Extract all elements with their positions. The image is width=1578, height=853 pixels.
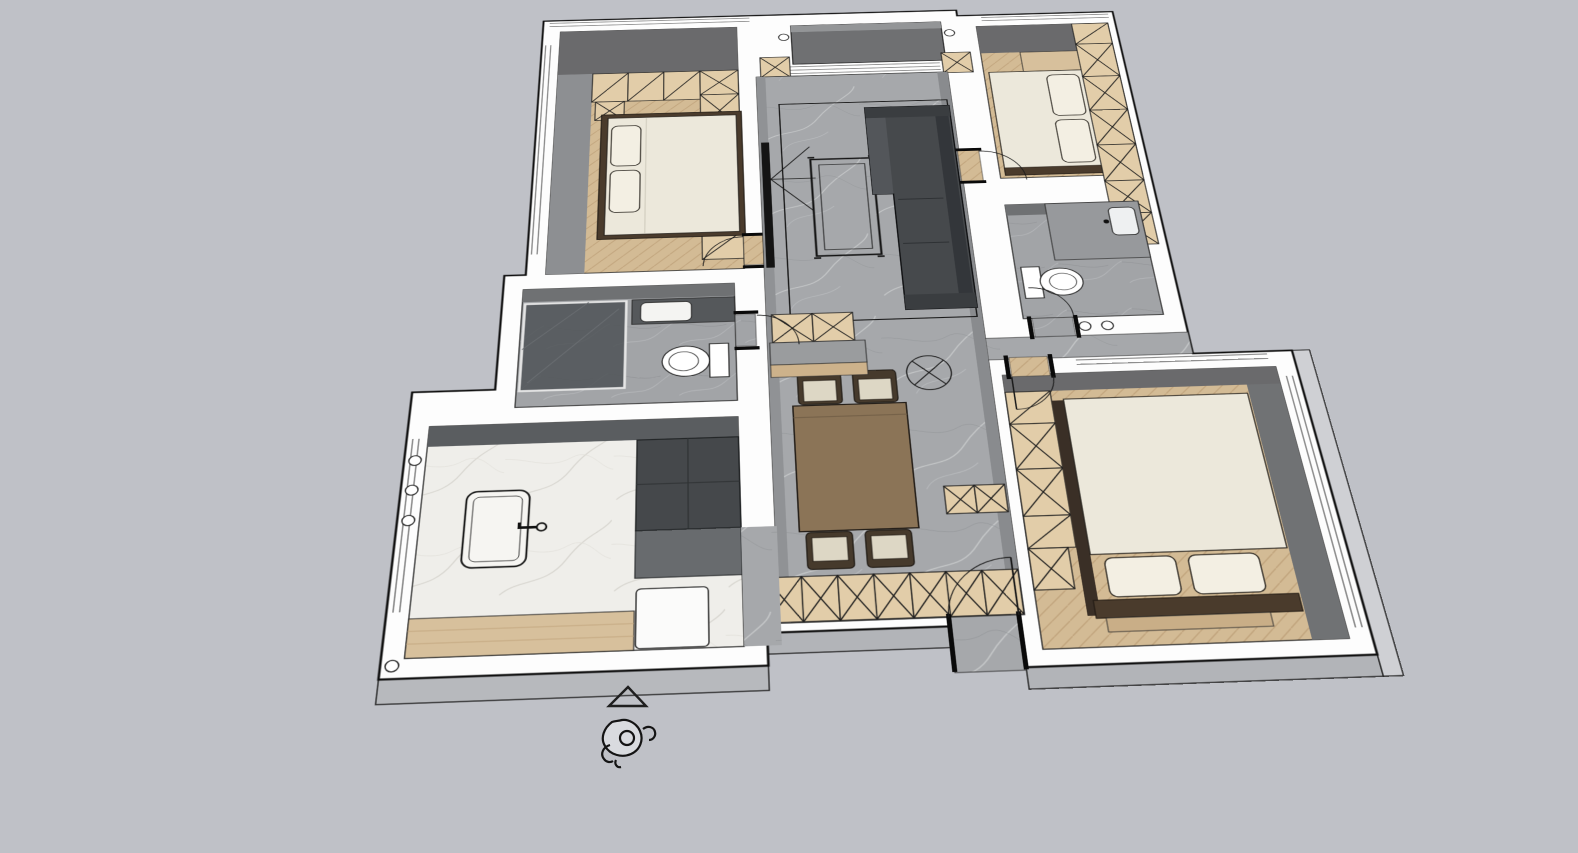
toilet-tank [709, 343, 729, 377]
entry-floor [949, 615, 1027, 673]
bathroom2-door-opening [1032, 317, 1076, 337]
pillow [1187, 553, 1267, 594]
bedroom2-door-opening [957, 150, 983, 181]
person-left-arm [602, 745, 613, 762]
person-body [603, 720, 642, 756]
vanity-sink [1108, 207, 1140, 235]
bed-duvet [1063, 393, 1287, 554]
appliance-box [635, 587, 709, 649]
person-head [620, 731, 634, 745]
wall-pipe [944, 29, 955, 36]
pillow [609, 170, 640, 213]
hall-cabinet-counter [770, 340, 867, 365]
dining-chair [806, 531, 855, 569]
viewport-3d[interactable] [0, 0, 1578, 853]
wood-plank-strip [405, 611, 635, 658]
person-figure-top-view [602, 720, 655, 767]
person-foot [615, 760, 621, 767]
scene-3d-transform [368, 6, 1267, 699]
kitchen-counter-block [635, 527, 742, 578]
entry-near-cabinets [944, 484, 1009, 514]
bedroom1-wall-face [558, 27, 738, 75]
bedroom1-door-opening [743, 235, 764, 265]
room-kitchen [384, 416, 782, 673]
bath1-sink [641, 301, 692, 322]
kitchen-hall-opening [741, 526, 782, 646]
bedroom3-door-opening [1009, 356, 1051, 376]
bed-1 [597, 111, 745, 239]
sideboard-x-cabinet-row [765, 569, 1024, 623]
pillow [1104, 556, 1183, 597]
bathroom1-door-opening [735, 314, 756, 346]
wall-pipe [778, 34, 788, 41]
floor-plan-model [368, 6, 1267, 699]
pillow [611, 125, 641, 166]
room-bedroom-top-left [530, 18, 767, 275]
person-right-arm [643, 727, 655, 740]
dining-table [793, 402, 919, 531]
sofa-armrest [904, 293, 977, 310]
glass-shower [519, 301, 626, 391]
dining-chair [865, 529, 915, 567]
